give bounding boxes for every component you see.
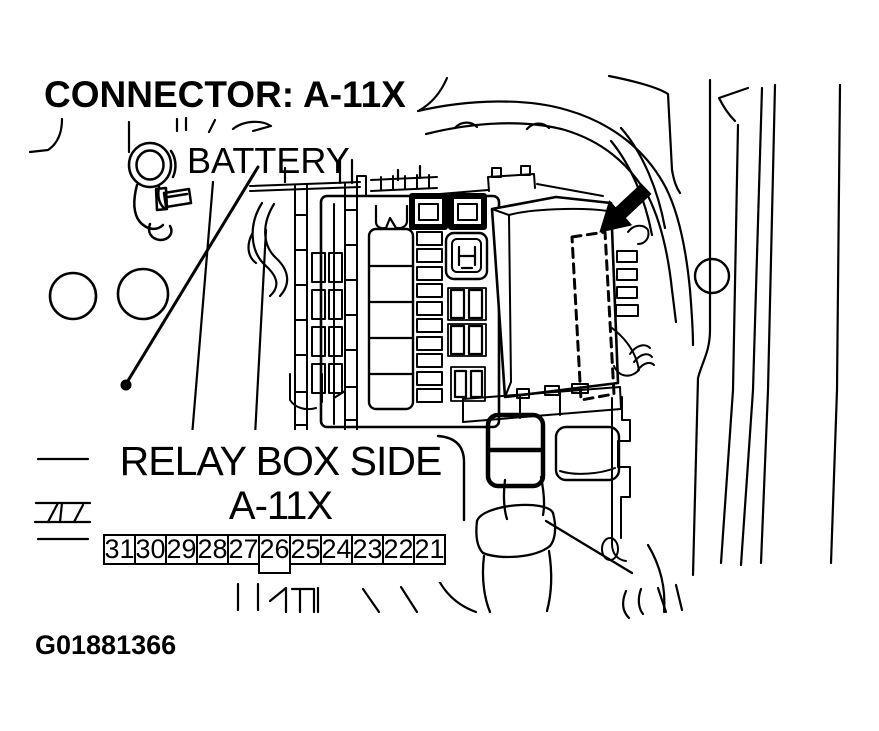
pin-cell-31: 31 bbox=[103, 534, 136, 565]
connector-callout: RELAY BOX SIDE A-11X 3130292827262524232… bbox=[95, 430, 466, 582]
callout-relay-box-side-label: RELAY BOX SIDE bbox=[95, 441, 466, 482]
diagram-page: CONNECTOR: A-11X BATTERY RELAY BOX SIDE … bbox=[0, 0, 879, 731]
hose-cylinder bbox=[476, 477, 632, 612]
bolt-hole-circles bbox=[50, 269, 168, 319]
pin-cell-23: 23 bbox=[351, 534, 384, 565]
relay-fuse-box bbox=[321, 196, 499, 427]
lower-relays bbox=[488, 415, 619, 486]
relay-box-cover bbox=[492, 197, 618, 397]
relay-block bbox=[412, 196, 445, 227]
pin-cell-21: 21 bbox=[413, 534, 446, 565]
relay-block bbox=[451, 196, 484, 227]
battery-label: BATTERY bbox=[187, 140, 350, 182]
body-panel-lines bbox=[693, 80, 840, 575]
pointer-arrow-icon bbox=[600, 184, 651, 232]
left-edge-fragments bbox=[35, 459, 90, 539]
pin-strip: 3130292827262524232221 bbox=[103, 534, 446, 565]
wiring-harness-curls bbox=[249, 203, 288, 296]
pin-cell-26: 26 bbox=[258, 534, 291, 565]
relay-rails bbox=[290, 183, 357, 438]
pin-cell-30: 30 bbox=[134, 534, 167, 565]
pin-cell-25: 25 bbox=[289, 534, 322, 565]
pin-cell-29: 29 bbox=[165, 534, 198, 565]
pin-cell-27: 27 bbox=[227, 534, 260, 565]
callout-connector-id-label: A-11X bbox=[95, 486, 466, 526]
battery-terminal-clamp bbox=[129, 143, 191, 240]
pin-cell-28: 28 bbox=[196, 534, 229, 565]
battery-leader-dot bbox=[121, 380, 132, 391]
battery-leader-line bbox=[126, 167, 258, 384]
fuse-column bbox=[417, 232, 442, 402]
pin-cell-22: 22 bbox=[382, 534, 415, 565]
figure-id: G01881366 bbox=[35, 630, 176, 661]
page-title: CONNECTOR: A-11X bbox=[44, 74, 406, 116]
engine-bay-line bbox=[192, 182, 213, 436]
pin-cell-24: 24 bbox=[320, 534, 353, 565]
